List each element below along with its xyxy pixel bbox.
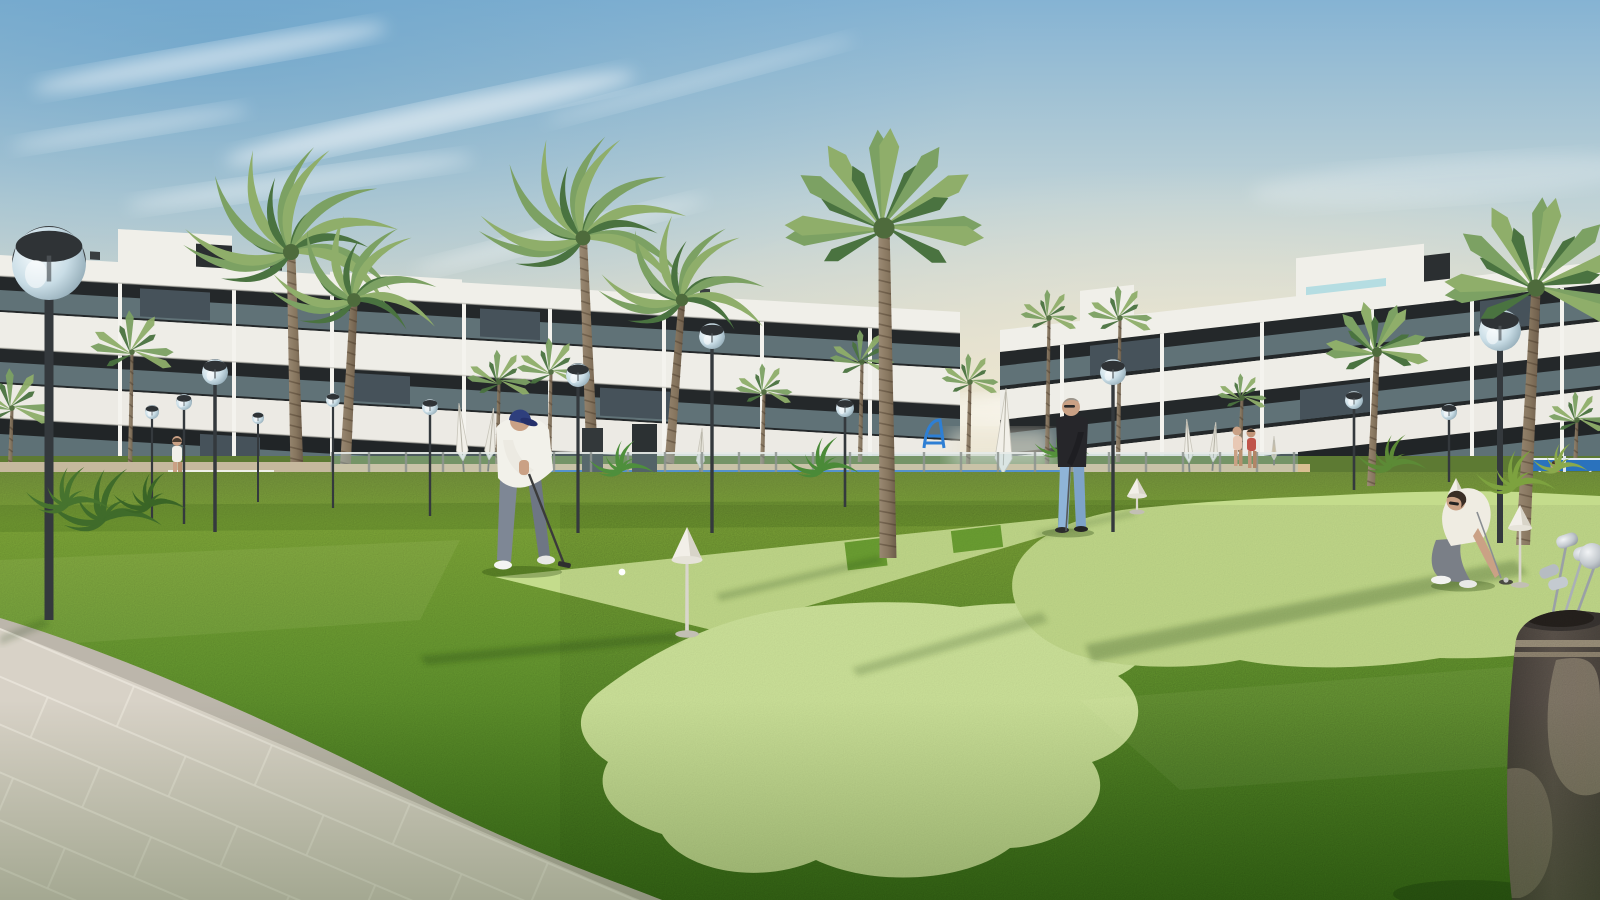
woman-on-terrace: [172, 436, 182, 476]
golf-ball: [619, 569, 626, 576]
scene-canvas: [0, 0, 1600, 900]
foreground-vignette: [0, 700, 1600, 900]
roof-unit: [90, 251, 100, 260]
rendered-scene: [0, 0, 1600, 900]
